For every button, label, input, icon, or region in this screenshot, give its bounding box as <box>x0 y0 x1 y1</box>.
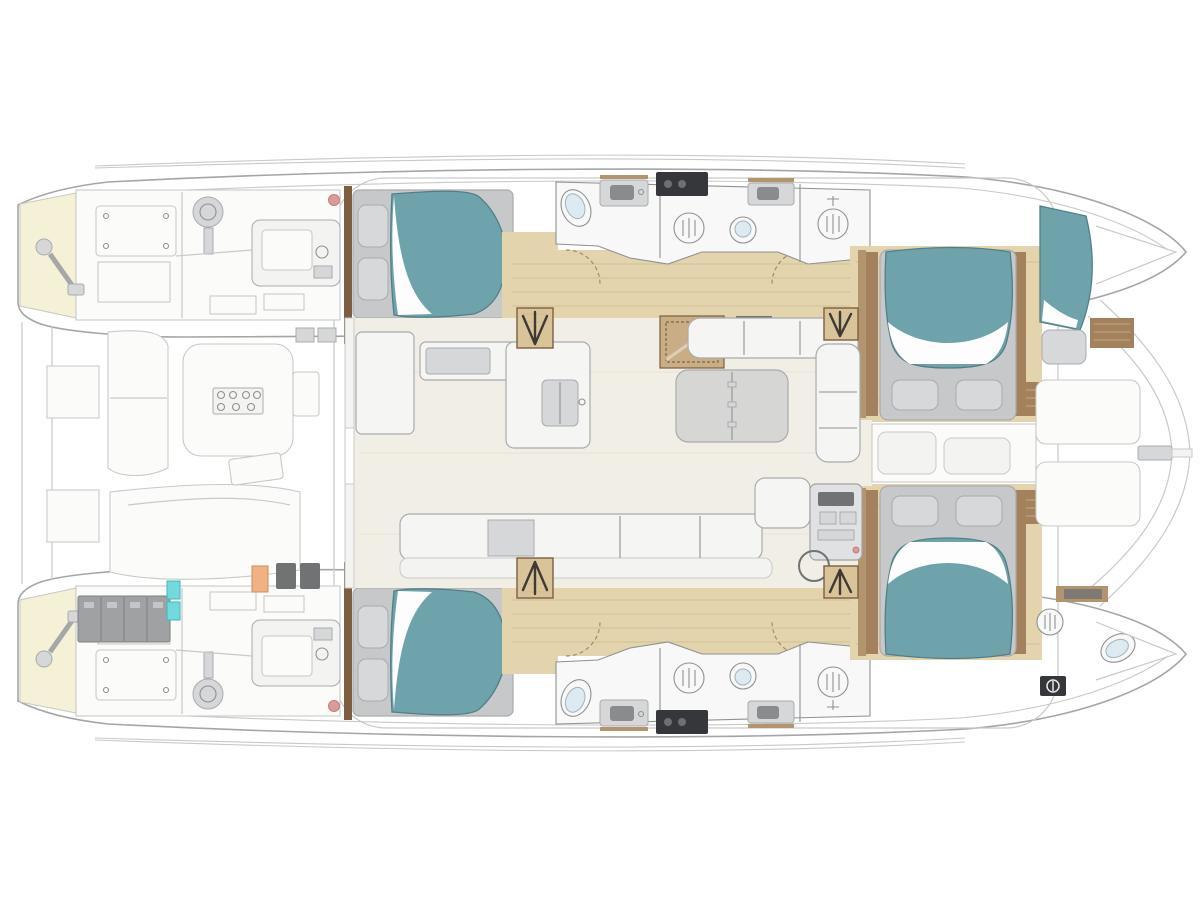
charger-icon <box>300 563 320 589</box>
water-heater-icon <box>1040 676 1066 696</box>
instrument-panel-icon <box>818 492 854 506</box>
fwd-cabin-port <box>850 246 1066 422</box>
fwd-cabin-starboard <box>850 484 1066 660</box>
floorplan-canvas <box>0 0 1200 900</box>
gauge-icon <box>820 512 836 524</box>
forepeak-floor <box>1090 318 1134 348</box>
cockpit-bench <box>108 331 168 476</box>
engine-room-port <box>20 190 340 320</box>
filter-cyan-icon <box>167 602 180 620</box>
charger-icon <box>276 563 296 589</box>
shower-drain-icon <box>1037 609 1063 635</box>
galley-cabinet <box>356 332 414 434</box>
windshield-pane <box>1036 462 1140 526</box>
salon-sofa-aft <box>400 514 772 578</box>
forward-cockpit <box>872 424 1036 482</box>
counter <box>1056 586 1108 602</box>
pillow <box>1042 330 1086 364</box>
alarm-led-icon <box>853 547 859 553</box>
sofa-backrest <box>400 558 772 578</box>
windshield-pane <box>1036 380 1140 444</box>
salon <box>345 308 872 598</box>
sliding-door <box>345 428 354 484</box>
fwd-bench <box>944 438 1010 474</box>
chaise-seat <box>755 478 810 528</box>
battery-bank-icon <box>78 596 170 642</box>
filter-cyan-icon <box>167 581 180 599</box>
fwd-bench <box>878 432 936 474</box>
catamaran-floorplan <box>0 0 1200 900</box>
cockpit-locker <box>47 490 99 542</box>
table-leaf <box>228 453 283 486</box>
cockpit-locker <box>47 366 99 418</box>
aft-cockpit <box>22 322 336 584</box>
gauge-icon <box>840 512 856 524</box>
table-leaf <box>293 372 319 416</box>
switch-panel-icon <box>818 530 854 540</box>
cooktop-icon <box>426 348 490 374</box>
cockpit-table <box>183 344 319 485</box>
grill-module <box>318 328 336 342</box>
bowsprit-fitting <box>1138 446 1172 460</box>
bowsprit-fitting <box>1172 449 1192 457</box>
grill-module <box>296 328 314 342</box>
seat-cushion <box>488 520 534 556</box>
pump-orange-icon <box>252 566 268 592</box>
dining-table <box>676 370 788 442</box>
